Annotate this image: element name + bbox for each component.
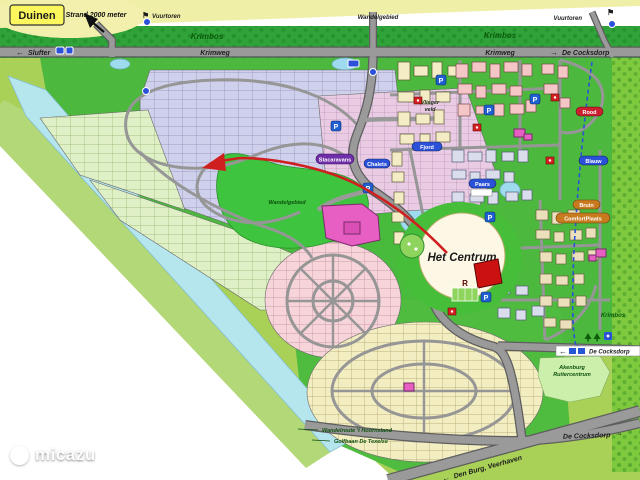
duinen-label: Duinen [18,10,56,22]
parking-label: P [439,78,444,85]
wandelroute-label: Wandelroute 't Hoornsland [322,428,393,434]
fjord-label: Fjord [420,145,434,151]
parking-label: P [484,295,489,302]
vliegerveld-label-2: veld [424,107,436,113]
restaurant-building [474,259,502,288]
cocksdorp-sign-arrow: ← [559,347,567,356]
parking-label: P [488,215,493,222]
golfbaan-label: Golfbaan De Texelse [334,439,388,445]
slufter-arrow: ← [16,48,24,57]
krimbos-small-label: Krimbos [601,313,626,319]
strand-label: Strand 2000 meter [66,12,128,19]
flag-icon: ⚑ [607,8,614,17]
parking-label: P [533,97,538,104]
cocksdorp-bottom-arrow: → [615,429,623,438]
micazu-logo-icon [10,446,29,465]
cocksdorp-top-arrow: → [550,48,558,57]
map-canvas: Het Centrum R [0,0,640,480]
stacaravans-label: Stacaravans [319,158,351,164]
krimbos-right-label: Krimbos [484,31,517,40]
wandelgebied-park-label: Wandelgebied [268,200,306,206]
restaurant-marker: R [462,279,468,288]
paars-legend-box [471,189,492,196]
vliegerveld-label-1: Vlieger [421,100,440,106]
ruitercentrum-label-2: Ruitercentrum [553,372,591,378]
ruitercentrum-area [538,356,610,402]
blauw-label: Blauw [585,159,602,165]
vuurtoren-left-label: Vuurtoren [152,14,181,20]
rood-label: Rood [582,110,596,116]
chalets-label: Chalets [367,162,387,168]
flag-icon: ⚑ [142,11,149,20]
wandelgebied-top-label: Wandelgebied [358,15,399,21]
bus-line-icon [569,348,576,354]
slufter-label: Slufter [28,50,51,57]
krimweg-left-label: Krimweg [200,50,230,57]
vuurtoren-right-label: Vuurtoren [553,16,582,22]
ruitercentrum-label-1: Akenburg [558,365,585,371]
paars-label: Paars [475,182,490,188]
krimbos-left-label: Krimbos [191,32,224,41]
parking-label: P [334,124,339,131]
park-map-image[interactable]: Het Centrum R [0,0,640,480]
krimweg-right-label: Krimweg [485,50,515,57]
bus-line-icon [578,348,585,354]
bruin-label: Bruin [579,203,594,209]
micazu-brand-text: micazu [35,445,96,465]
cocksdorp-sign-label: De Cocksdorp [589,350,630,356]
micazu-logo-dot [17,453,22,458]
micazu-watermark: micazu [10,445,96,465]
cocksdorp-top-label: De Cocksdorp [562,50,610,57]
parking-label: P [487,108,492,115]
comfortplaats-label: ComfortPlaats [564,217,602,223]
